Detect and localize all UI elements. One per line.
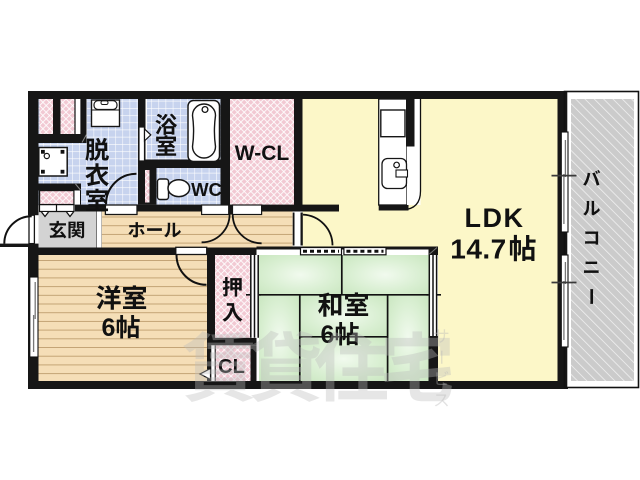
svg-text:14.7: 14.7 <box>450 233 507 264</box>
svg-text:LDK: LDK <box>465 203 525 233</box>
svg-text:W-CL: W-CL <box>235 142 290 165</box>
svg-text:6: 6 <box>102 314 116 342</box>
svg-text:WC: WC <box>191 179 222 200</box>
